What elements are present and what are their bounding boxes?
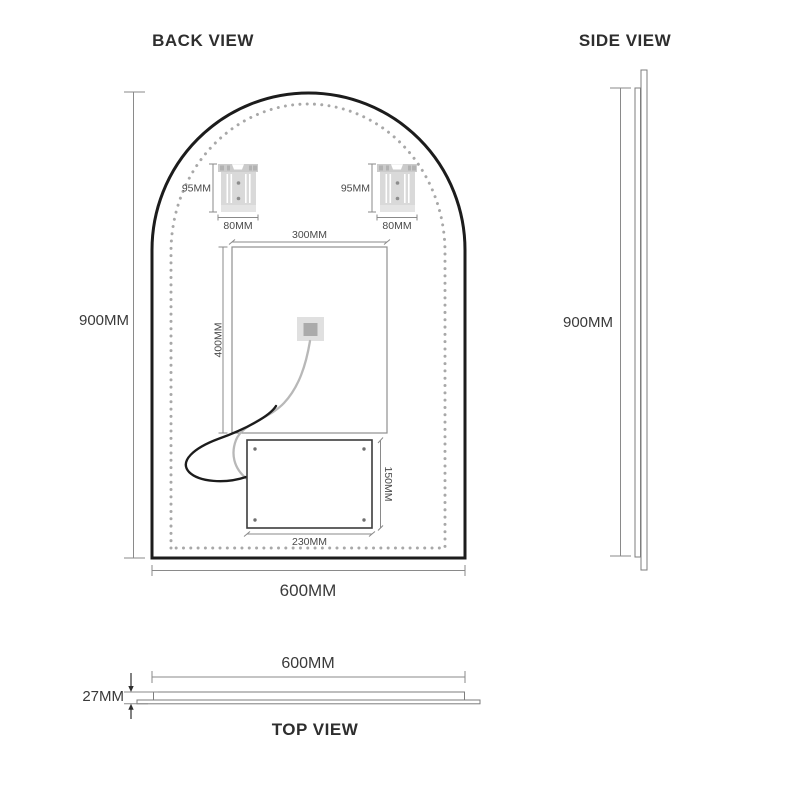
side-height-dimension: 900MM	[563, 88, 631, 556]
back-height-dimension: 900MM	[79, 92, 145, 558]
back-width-dimension: 600MM	[152, 565, 465, 600]
back-view: BACK VIEW 900MM 600MM	[79, 31, 465, 600]
junction-box	[247, 440, 372, 528]
top-view-title: TOP VIEW	[272, 720, 359, 739]
demister-width-label: 300MM	[292, 229, 327, 241]
side-view: SIDE VIEW 900MM	[563, 31, 672, 570]
arrow-up-icon	[128, 704, 133, 710]
touch-sensor	[297, 317, 324, 341]
arrow-down-icon	[128, 686, 133, 692]
screw-dot	[362, 518, 365, 521]
top-width-dimension: 600MM	[152, 655, 465, 683]
top-view: 600MM 27MM TOP VIEW	[82, 655, 480, 739]
top-profile-backpanel	[154, 692, 465, 700]
screw-dot	[362, 447, 365, 450]
demister-height-label: 400MM	[213, 322, 225, 357]
junction-box-height-label: 150MM	[382, 466, 394, 501]
top-profile-mirror-glass	[137, 700, 480, 704]
screw-dot	[253, 518, 256, 521]
back-view-title: BACK VIEW	[152, 31, 254, 50]
side-profile-backpanel	[635, 88, 641, 557]
screw-dot	[253, 447, 256, 450]
bracket-left-height-label: 95MM	[182, 183, 211, 195]
side-profile-mirror-glass	[641, 70, 647, 570]
mirror-technical-drawing: BACK VIEW 900MM 600MM	[0, 0, 800, 800]
bracket-right-width-label: 80MM	[382, 220, 411, 232]
top-width-label: 600MM	[281, 655, 334, 672]
junction-box-width-label: 230MM	[292, 536, 327, 548]
back-width-label: 600MM	[280, 581, 337, 600]
bracket-left-width-label: 80MM	[223, 220, 252, 232]
side-height-label: 900MM	[563, 314, 613, 331]
top-thickness-dimension: 27MM	[82, 673, 158, 719]
bracket-right-height-label: 95MM	[341, 183, 370, 195]
back-height-label: 900MM	[79, 312, 129, 329]
side-view-title: SIDE VIEW	[579, 31, 672, 50]
top-thickness-label: 27MM	[82, 688, 124, 705]
